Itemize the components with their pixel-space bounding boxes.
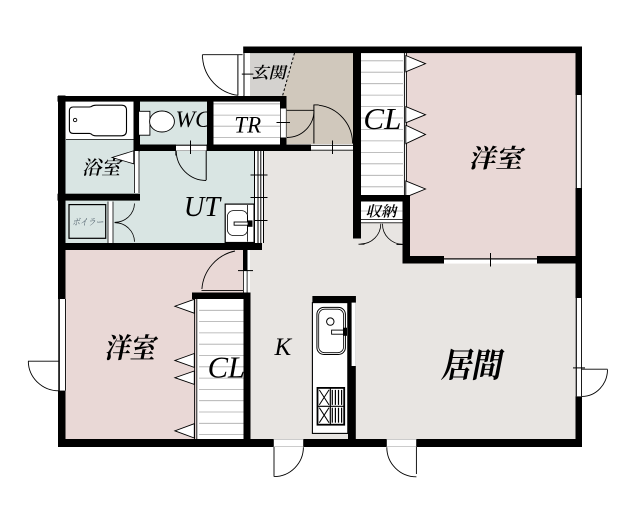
- svg-text:CL: CL: [363, 101, 401, 136]
- svg-text:TR: TR: [234, 113, 261, 138]
- svg-text:K: K: [274, 334, 293, 361]
- svg-text:CL: CL: [208, 350, 245, 384]
- svg-text:WC: WC: [176, 107, 212, 133]
- svg-text:UT: UT: [184, 192, 223, 223]
